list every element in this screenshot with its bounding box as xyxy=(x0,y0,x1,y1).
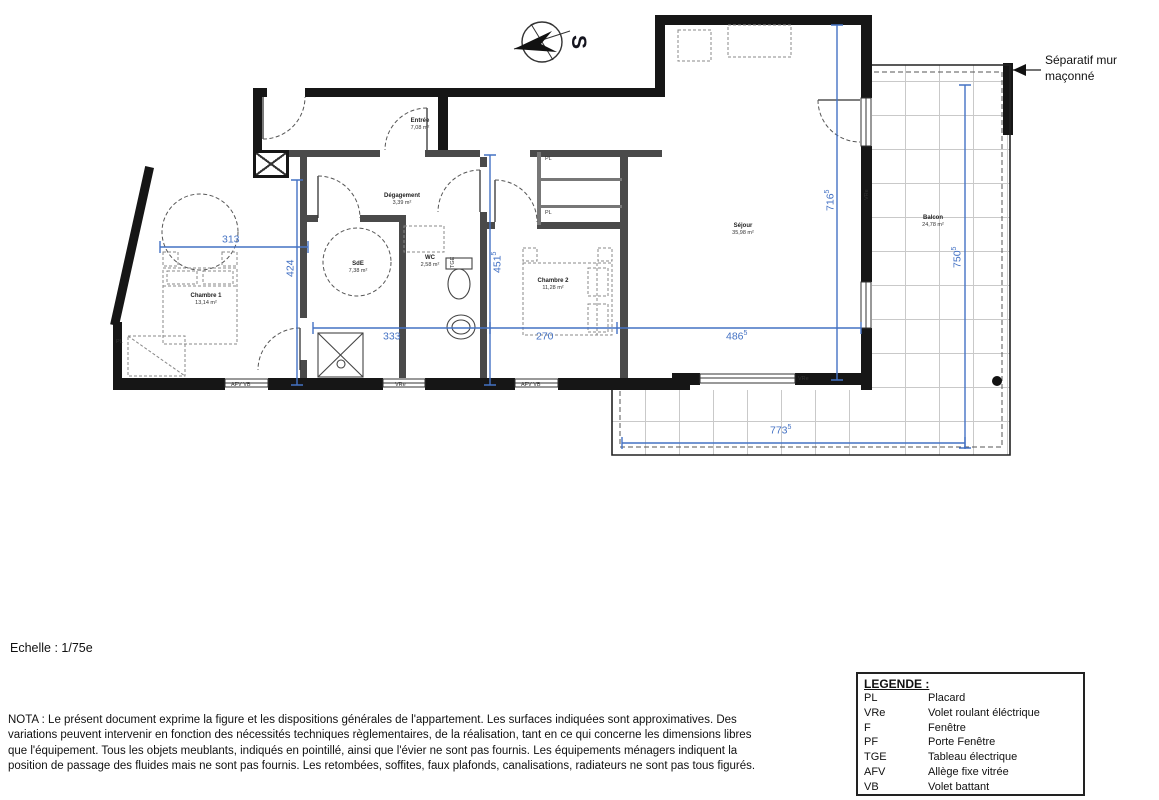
wall-segment xyxy=(253,88,262,152)
room-label-balcon: Balcon 24,78 m² xyxy=(898,215,968,228)
separator-wall xyxy=(1003,63,1013,135)
balcony-tiles-bottom xyxy=(612,390,872,455)
dimension-486: 4865 xyxy=(726,330,747,343)
separator-label: Séparatif mur maçonné xyxy=(1045,53,1155,84)
nota-text: NOTA : Le présent document exprime la fi… xyxy=(8,713,765,775)
dimension-424: 424 xyxy=(284,251,297,285)
dimension-270: 270 xyxy=(536,330,554,343)
dimension-716: 7165 xyxy=(824,183,837,217)
interior-wall xyxy=(300,157,307,318)
floor-plan-page: S Séparatif mur maçonné Entrée 7,08 m² D… xyxy=(0,0,1159,800)
interior-wall xyxy=(537,222,628,229)
window-label-afv-vb: AFV VB xyxy=(231,382,251,388)
separator-arrow xyxy=(1013,64,1041,76)
wall-segment xyxy=(558,378,690,390)
dimension-313: 313 xyxy=(222,233,240,246)
dimension-750: 7505 xyxy=(951,240,964,274)
closet-wall xyxy=(537,178,622,181)
room-label-entree: Entrée 7,08 m² xyxy=(385,118,455,131)
interior-wall xyxy=(289,150,380,157)
window-label-afv-vb: AFV VB xyxy=(521,382,541,388)
legend-row: VReVolet roulant éléctrique xyxy=(864,706,1077,721)
wall-segment xyxy=(268,378,383,390)
wall-segment xyxy=(425,378,515,390)
wall-segment-diagonal xyxy=(110,166,154,326)
furniture-dashed xyxy=(128,25,791,376)
legend-row: TGETableau électrique xyxy=(864,750,1077,765)
wall-segment xyxy=(655,15,872,25)
compass-icon xyxy=(514,22,570,62)
placard-label: PL xyxy=(116,339,123,345)
room-label-sejour: Séjour 35,98 m² xyxy=(708,223,778,236)
wall-segment xyxy=(113,378,225,390)
interior-wall xyxy=(480,212,487,378)
interior-wall xyxy=(360,215,406,222)
fixtures xyxy=(318,258,475,377)
legend-row: PFPorte Fenêtre xyxy=(864,735,1077,750)
closet-wall xyxy=(537,152,541,225)
interior-wall xyxy=(399,222,406,378)
duct-shaft xyxy=(253,150,289,178)
dimension-451: 4515 xyxy=(491,245,504,279)
interior-wall xyxy=(300,360,307,378)
wall-segment xyxy=(113,322,122,390)
wall-segment xyxy=(672,373,700,385)
legend-row: AFVAllège fixe vitrée xyxy=(864,765,1077,780)
scale-label: Echelle : 1/75e xyxy=(10,641,93,655)
legend-row: PLPlacard xyxy=(864,691,1077,706)
dimension-773: 7735 xyxy=(770,424,791,437)
north-letter: S xyxy=(566,35,590,49)
window-label-vre: VRe xyxy=(395,382,406,388)
window-glyphs xyxy=(225,98,871,387)
interior-wall xyxy=(480,157,487,167)
legend-box: LEGENDE : PLPlacard VReVolet roulant élé… xyxy=(856,672,1085,796)
interior-wall xyxy=(300,215,318,222)
closet-wall xyxy=(537,205,622,208)
room-label-sde: SdE 7,38 m² xyxy=(323,261,393,274)
room-label-chambre2: Chambre 2 11,28 m² xyxy=(518,278,588,291)
balcony-tiles-right xyxy=(872,65,1010,455)
interior-wall xyxy=(480,222,495,229)
window-label-vre: VRe xyxy=(864,189,870,200)
window-label-vre: VRe xyxy=(798,376,809,382)
room-label-degagement: Dégagement 3,39 m² xyxy=(367,193,437,206)
interior-wall xyxy=(425,150,480,157)
wall-segment xyxy=(305,88,665,97)
legend-row: FFenêtre xyxy=(864,721,1077,736)
placard-label: PL xyxy=(545,210,552,216)
wall-segment xyxy=(861,15,872,98)
placard-label: PL xyxy=(545,156,552,162)
room-label-chambre1: Chambre 1 13,14 m² xyxy=(171,293,241,306)
dimension-333: 333 xyxy=(383,330,401,343)
legend-row: VBVolet battant xyxy=(864,780,1077,795)
legend-title: LEGENDE : xyxy=(864,677,1077,691)
interior-wall xyxy=(620,150,628,378)
tge-label: TGE xyxy=(450,257,456,268)
wall-segment xyxy=(655,15,665,97)
wall-segment xyxy=(861,146,872,282)
